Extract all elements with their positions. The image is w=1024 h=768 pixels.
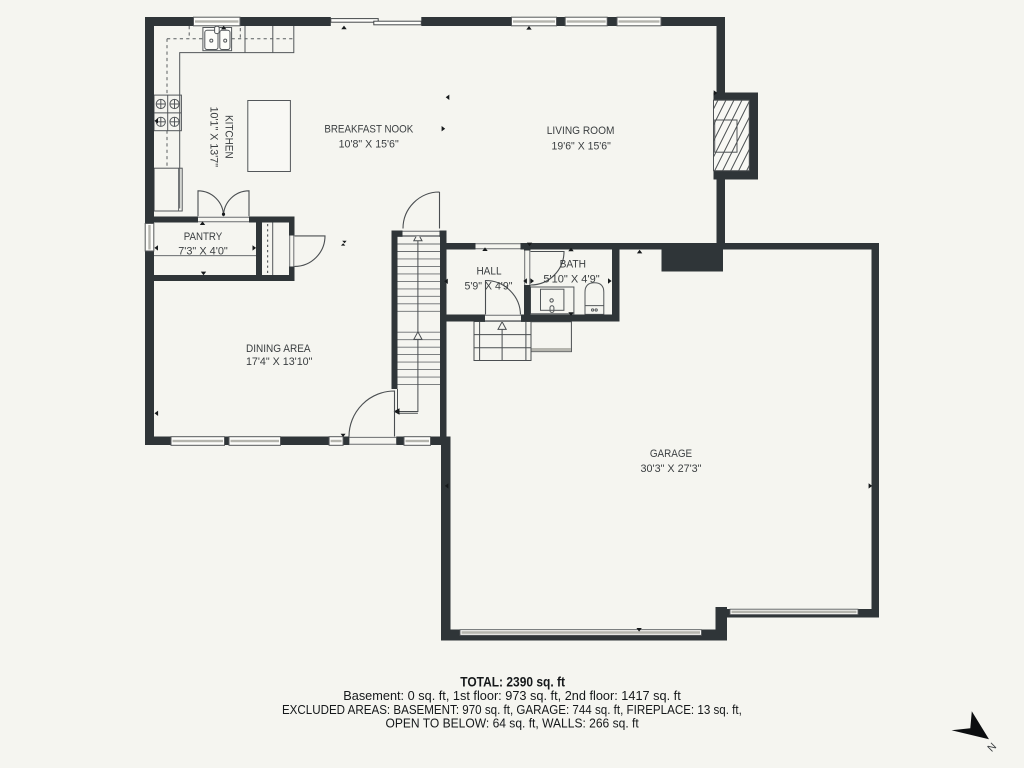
svg-text:10'8" X 15'6": 10'8" X 15'6" [339, 139, 399, 151]
svg-text:TOTAL: 2390 sq. ft: TOTAL: 2390 sq. ft [460, 673, 565, 689]
svg-text:DINING AREA: DINING AREA [246, 343, 311, 355]
svg-text:7'3" X 4'0": 7'3" X 4'0" [178, 246, 228, 258]
svg-text:10'1" X 13'7": 10'1" X 13'7" [207, 107, 219, 167]
svg-text:5'9" X 4'9": 5'9" X 4'9" [465, 281, 513, 293]
svg-text:OPEN TO BELOW: 64 sq. ft, WALL: OPEN TO BELOW: 64 sq. ft, WALLS: 266 sq.… [386, 715, 640, 730]
svg-text:HALL: HALL [476, 266, 501, 278]
svg-text:BATH: BATH [560, 259, 586, 271]
svg-text:GARAGE: GARAGE [650, 448, 692, 460]
svg-text:19'6" X 15'6": 19'6" X 15'6" [552, 141, 611, 153]
svg-text:BREAKFAST NOOK: BREAKFAST NOOK [324, 124, 413, 136]
svg-text:30'3" X 27'3": 30'3" X 27'3" [641, 463, 702, 475]
svg-text:KITCHEN: KITCHEN [222, 115, 234, 159]
svg-text:PANTRY: PANTRY [184, 231, 223, 243]
svg-text:5'10" X 4'9": 5'10" X 4'9" [543, 274, 599, 286]
svg-text:Basement: 0 sq. ft, 1st floor:: Basement: 0 sq. ft, 1st floor: 973 sq. f… [343, 688, 681, 703]
svg-text:LIVING ROOM: LIVING ROOM [547, 125, 615, 137]
svg-text:17'4" X 13'10": 17'4" X 13'10" [246, 356, 313, 368]
